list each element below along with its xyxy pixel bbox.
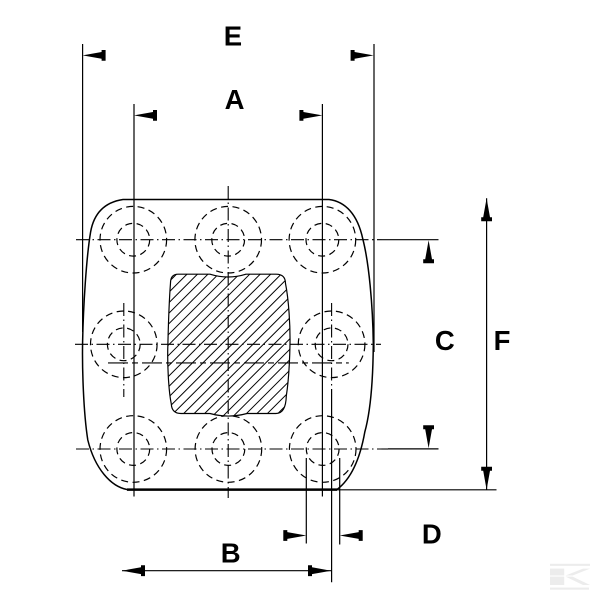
svg-text:A: A [225, 84, 245, 115]
svg-text:F: F [494, 325, 511, 356]
svg-text:B: B [221, 537, 241, 568]
svg-text:D: D [422, 518, 442, 549]
svg-text:E: E [224, 21, 242, 52]
svg-text:C: C [435, 325, 455, 356]
